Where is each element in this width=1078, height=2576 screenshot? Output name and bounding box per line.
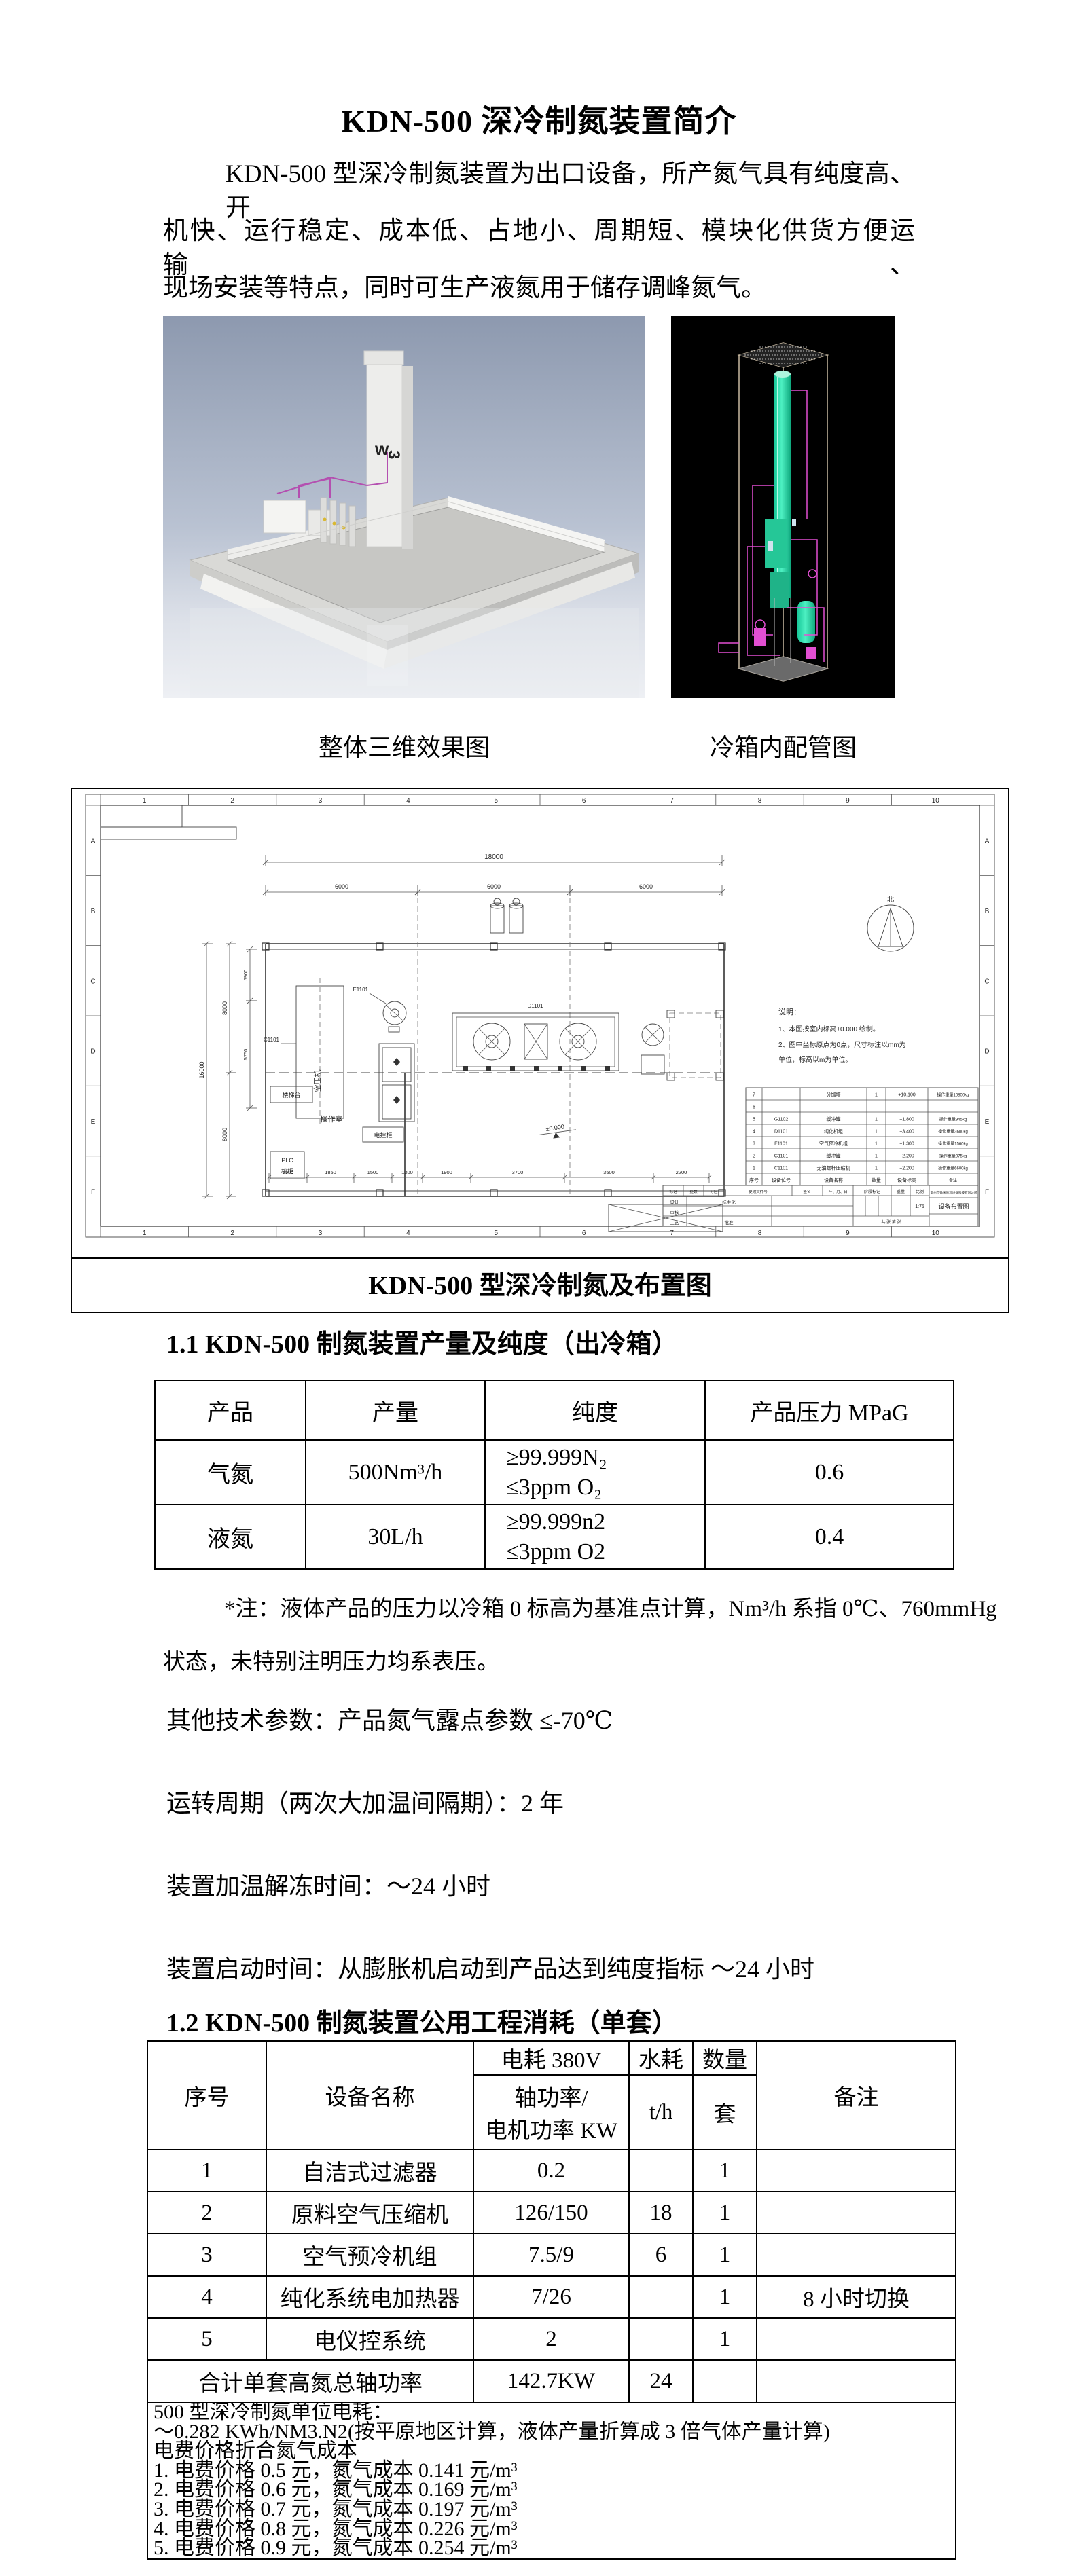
svg-text:F: F bbox=[91, 1188, 95, 1196]
total-qty bbox=[693, 2360, 757, 2402]
drawing-note-2: 2、图中坐标原点为0点，尺寸标注以mm为 bbox=[778, 1040, 906, 1049]
svg-text:1: 1 bbox=[875, 1118, 878, 1122]
svg-text:设计: 设计 bbox=[670, 1199, 680, 1205]
cell: 1 bbox=[693, 2150, 757, 2192]
coldbox-piping-image bbox=[671, 316, 895, 698]
svg-text:操作重量975kg: 操作重量975kg bbox=[939, 1154, 967, 1159]
total-remark bbox=[757, 2360, 956, 2402]
svg-text:D1101: D1101 bbox=[774, 1130, 788, 1135]
svg-text:16000: 16000 bbox=[198, 1061, 205, 1078]
cell-output: 30L/h bbox=[306, 1505, 485, 1569]
svg-text:2: 2 bbox=[230, 797, 234, 805]
header-no: 序号 bbox=[147, 2041, 266, 2150]
svg-text:+3.400: +3.400 bbox=[899, 1130, 914, 1135]
svg-text:1200: 1200 bbox=[401, 1169, 413, 1175]
cell: 1 bbox=[693, 2276, 757, 2318]
svg-text:+1.300: +1.300 bbox=[899, 1142, 914, 1147]
compressor-label: 空压机 bbox=[312, 1070, 322, 1092]
svg-text:纯化机组: 纯化机组 bbox=[824, 1128, 843, 1135]
total-label: 合计单套高氮总轴功率 bbox=[147, 2360, 473, 2402]
purity-line: ≤3ppm O2 bbox=[506, 1537, 704, 1567]
header-power: 电耗 380V bbox=[473, 2041, 629, 2075]
cell bbox=[629, 2150, 693, 2192]
intro-line-3: 现场安装等特点，同时可生产液氮用于储存调峰氮气。 bbox=[163, 272, 915, 306]
svg-text:F: F bbox=[985, 1188, 989, 1196]
tech-param-2: 运转周期（两次大加温间隔期）：2 年 bbox=[166, 1784, 564, 1819]
svg-text:缓冲罐: 缓冲罐 bbox=[827, 1153, 841, 1159]
cell: 1 bbox=[693, 2318, 757, 2360]
svg-text:分区: 分区 bbox=[710, 1189, 718, 1194]
drawing-caption: KDN-500 型深冷制氮及布置图 bbox=[72, 1257, 1008, 1312]
cell: 4 bbox=[147, 2276, 266, 2318]
layout-drawing-svg: 1122334455667788991010AABBCCDDEEFF bbox=[72, 789, 1008, 1257]
tech-param-4: 装置启动时间：从膨胀机启动到产品达到纯度指标 ～24 小时 bbox=[166, 1949, 814, 1985]
svg-text:1: 1 bbox=[875, 1142, 878, 1147]
svg-text:E1101: E1101 bbox=[774, 1142, 788, 1147]
purity-line: ≤3ppm O₂ bbox=[506, 1473, 704, 1503]
tag-d1101: D1101 bbox=[528, 1003, 544, 1009]
svg-text:8: 8 bbox=[758, 1230, 762, 1237]
unit-cost-block: 500 型深冷制氮单位电耗： ～0.282 KWh/NM3.N2(按平原地区计算… bbox=[147, 2402, 956, 2559]
cell: 2 bbox=[147, 2192, 266, 2234]
svg-text:C: C bbox=[90, 978, 95, 985]
drawing-note-3: 单位，标高以m为单位。 bbox=[778, 1055, 852, 1064]
svg-text:1850: 1850 bbox=[325, 1169, 336, 1175]
cell: 1 bbox=[693, 2192, 757, 2234]
table-row: 3 空气预冷机组 7.5/9 6 1 bbox=[147, 2234, 956, 2276]
cell bbox=[757, 2192, 956, 2234]
table-row: 2 原料空气压缩机 126/150 18 1 bbox=[147, 2192, 956, 2234]
table-row: 5 电仪控系统 2 1 bbox=[147, 2318, 956, 2360]
svg-text:4: 4 bbox=[406, 1230, 410, 1237]
cell: 8 小时切换 bbox=[757, 2276, 956, 2318]
svg-text:10: 10 bbox=[932, 1230, 940, 1237]
svg-text:1: 1 bbox=[875, 1154, 878, 1159]
cell-purity: ≥99.999N₂ ≤3ppm O₂ bbox=[485, 1440, 705, 1505]
svg-text:1: 1 bbox=[753, 1166, 755, 1171]
cell: 18 bbox=[629, 2192, 693, 2234]
svg-text:D: D bbox=[90, 1048, 95, 1056]
svg-text:1: 1 bbox=[875, 1093, 878, 1098]
table-total-row: 合计单套高氮总轴功率 142.7KW 24 bbox=[147, 2360, 956, 2402]
page-title: KDN-500 深冷制氮装置简介 bbox=[0, 96, 1078, 141]
svg-text:6000: 6000 bbox=[335, 883, 348, 890]
svg-text:+2.200: +2.200 bbox=[899, 1166, 914, 1171]
left-figure-caption: 整体三维效果图 bbox=[163, 728, 645, 763]
table-row: 1 自洁式过滤器 0.2 1 bbox=[147, 2150, 956, 2192]
cell: 自洁式过滤器 bbox=[266, 2150, 473, 2192]
svg-text:B: B bbox=[91, 908, 96, 915]
svg-text:6: 6 bbox=[582, 797, 586, 805]
svg-text:签名: 签名 bbox=[803, 1189, 810, 1194]
svg-text:4: 4 bbox=[753, 1130, 755, 1135]
svg-text:8: 8 bbox=[758, 797, 762, 805]
svg-text:6000: 6000 bbox=[639, 883, 653, 890]
svg-text:备注: 备注 bbox=[949, 1178, 957, 1183]
total-power: 142.7KW bbox=[473, 2360, 629, 2402]
control-cabinet-label: 电控柜 bbox=[374, 1131, 392, 1139]
tech-param-3: 装置加温解冻时间：～24 小时 bbox=[166, 1866, 490, 1902]
header-device: 设备名称 bbox=[266, 2041, 473, 2150]
svg-text:D: D bbox=[984, 1048, 989, 1056]
svg-text:7: 7 bbox=[670, 797, 674, 805]
cell bbox=[757, 2234, 956, 2276]
svg-text:+1.800: +1.800 bbox=[899, 1118, 914, 1122]
svg-text:1: 1 bbox=[875, 1166, 878, 1171]
svg-text:操作重量945kg: 操作重量945kg bbox=[939, 1117, 967, 1122]
svg-text:标记: 标记 bbox=[669, 1189, 677, 1194]
svg-text:2: 2 bbox=[753, 1154, 755, 1159]
cell: 0.2 bbox=[473, 2150, 629, 2192]
cell-product: 液氮 bbox=[155, 1505, 306, 1569]
north-label: 北 bbox=[887, 896, 894, 904]
cell: 空气预冷机组 bbox=[266, 2234, 473, 2276]
svg-text:C: C bbox=[984, 978, 989, 985]
svg-text:1: 1 bbox=[143, 797, 147, 805]
plc-label-1: PLC bbox=[281, 1157, 293, 1164]
table-row: 气氮 500Nm³/h ≥99.999N₂ ≤3ppm O₂ 0.6 bbox=[155, 1440, 954, 1505]
svg-text:9: 9 bbox=[846, 797, 850, 805]
svg-text:E: E bbox=[91, 1118, 96, 1126]
svg-text:C1101: C1101 bbox=[774, 1166, 788, 1171]
unit-cost-line: 500 型深冷制氮单位电耗： bbox=[148, 2403, 955, 2423]
cell: 126/150 bbox=[473, 2192, 629, 2234]
plant-3d-render-image: w 3 bbox=[163, 316, 645, 698]
cell bbox=[757, 2150, 956, 2192]
svg-text:设备位号: 设备位号 bbox=[772, 1177, 791, 1183]
svg-text:2: 2 bbox=[230, 1230, 234, 1237]
svg-text:无油螺杆压缩机: 无油螺杆压缩机 bbox=[817, 1165, 850, 1171]
svg-text:7: 7 bbox=[670, 1230, 674, 1237]
layout-drawing-figure: 1122334455667788991010AABBCCDDEEFF bbox=[71, 788, 1009, 1313]
svg-text:工艺: 工艺 bbox=[670, 1220, 680, 1226]
svg-text:3: 3 bbox=[319, 797, 323, 805]
svg-text:4: 4 bbox=[406, 797, 410, 805]
cell: 电仪控系统 bbox=[266, 2318, 473, 2360]
svg-text:E: E bbox=[985, 1118, 990, 1126]
cell-pressure: 0.4 bbox=[705, 1505, 954, 1569]
svg-text:8000: 8000 bbox=[221, 1128, 228, 1141]
svg-text:1500: 1500 bbox=[367, 1169, 379, 1175]
svg-text:缓冲罐: 缓冲罐 bbox=[827, 1116, 841, 1122]
header-purity: 纯度 bbox=[485, 1380, 705, 1440]
header-remark: 备注 bbox=[757, 2041, 956, 2150]
svg-text:阶段标记: 阶段标记 bbox=[864, 1189, 880, 1194]
cell-output: 500Nm³/h bbox=[306, 1440, 485, 1505]
svg-text:更改文件号: 更改文件号 bbox=[749, 1189, 768, 1194]
cell-pressure: 0.6 bbox=[705, 1440, 954, 1505]
svg-text:7: 7 bbox=[753, 1093, 755, 1098]
total-water: 24 bbox=[629, 2360, 693, 2402]
svg-text:批准: 批准 bbox=[725, 1219, 734, 1226]
purity-line: ≥99.999n2 bbox=[506, 1507, 704, 1537]
header-water: 水耗 bbox=[629, 2041, 693, 2075]
header-water-sub: t/h bbox=[629, 2075, 693, 2150]
svg-text:共 张 第 张: 共 张 第 张 bbox=[881, 1219, 901, 1225]
cell: 6 bbox=[629, 2234, 693, 2276]
capacity-purity-table: 产品 产量 纯度 产品压力 MPaG 气氮 500Nm³/h ≥99.999N₂… bbox=[154, 1380, 954, 1570]
svg-text:3700: 3700 bbox=[512, 1169, 524, 1175]
power-sub-line: 轴功率/ bbox=[474, 2080, 628, 2112]
unit-cost-line: 3. 电费价格 0.7 元，氮气成本 0.197 元/m³ bbox=[148, 2500, 955, 2520]
svg-text:1: 1 bbox=[143, 1230, 147, 1237]
header-qty-sub: 套 bbox=[693, 2075, 757, 2150]
svg-text:5: 5 bbox=[495, 1230, 499, 1237]
svg-text:G1101: G1101 bbox=[774, 1154, 789, 1159]
svg-text:8000: 8000 bbox=[221, 1001, 228, 1015]
svg-text:空气预冷机组: 空气预冷机组 bbox=[819, 1141, 848, 1147]
document-page: { "page": {"title": "KDN-500 深冷制氮装置简介"},… bbox=[0, 0, 1078, 2576]
svg-text:操作重量3600kg: 操作重量3600kg bbox=[938, 1129, 968, 1135]
unit-cost-line: 电费价格折合氮气成本 bbox=[148, 2442, 955, 2461]
svg-text:设备布置图: 设备布置图 bbox=[938, 1202, 969, 1210]
svg-text:5750: 5750 bbox=[242, 1049, 249, 1061]
svg-text:分馏塔: 分馏塔 bbox=[827, 1092, 841, 1098]
purity-line: ≥99.999N₂ bbox=[506, 1443, 704, 1473]
svg-text:处数: 处数 bbox=[689, 1189, 698, 1194]
table-header-row: 产品 产量 纯度 产品压力 MPaG bbox=[155, 1380, 954, 1440]
unit-cost-row: 500 型深冷制氮单位电耗： ～0.282 KWh/NM3.N2(按平原地区计算… bbox=[147, 2402, 956, 2559]
svg-text:设备名称: 设备名称 bbox=[824, 1177, 843, 1183]
svg-text:数量: 数量 bbox=[872, 1177, 881, 1183]
svg-text:A: A bbox=[91, 838, 96, 845]
cell: 5 bbox=[147, 2318, 266, 2360]
elevation-label: ±0.000 bbox=[545, 1123, 565, 1133]
cell bbox=[629, 2318, 693, 2360]
power-sub-line: 电机功率 KW bbox=[474, 2112, 628, 2145]
right-figure-caption: 冷箱内配管图 bbox=[671, 728, 895, 763]
svg-text:操作重量1560kg: 操作重量1560kg bbox=[938, 1141, 968, 1147]
svg-text:1900: 1900 bbox=[441, 1169, 452, 1175]
svg-text:比例: 比例 bbox=[916, 1189, 924, 1194]
header-product: 产品 bbox=[155, 1380, 306, 1440]
unit-cost-line: ～0.282 KWh/NM3.N2(按平原地区计算，液体产量折算成 3 倍气体产… bbox=[148, 2423, 955, 2442]
svg-text:5: 5 bbox=[753, 1118, 755, 1122]
svg-text:3: 3 bbox=[319, 1230, 323, 1237]
header-power-sub: 轴功率/ 电机功率 KW bbox=[473, 2075, 629, 2150]
drawing-note-1: 1、本图按室内标高±0.000 绘制。 bbox=[778, 1025, 880, 1033]
svg-text:设备标高: 设备标高 bbox=[897, 1177, 916, 1183]
svg-text:序号: 序号 bbox=[749, 1177, 759, 1183]
cell: 1 bbox=[693, 2234, 757, 2276]
cell: 原料空气压缩机 bbox=[266, 2192, 473, 2234]
svg-text:5900: 5900 bbox=[242, 970, 249, 981]
utility-consumption-table: 序号 设备名称 电耗 380V 水耗 数量 备注 轴功率/ 电机功率 KW t/… bbox=[147, 2040, 956, 2560]
svg-text:6: 6 bbox=[753, 1105, 755, 1110]
cell bbox=[629, 2276, 693, 2318]
svg-text:+2.200: +2.200 bbox=[899, 1154, 914, 1159]
cell: 3 bbox=[147, 2234, 266, 2276]
svg-text:1:75: 1:75 bbox=[915, 1204, 924, 1209]
table-note-line-1: *注：液体产品的压力以冷箱 0 标高为基准点计算，Nm³/h 系指 0℃、760… bbox=[224, 1590, 997, 1623]
svg-text:年、月、日: 年、月、日 bbox=[829, 1189, 848, 1194]
table-header-row-1: 序号 设备名称 电耗 380V 水耗 数量 备注 bbox=[147, 2041, 956, 2075]
svg-text:A: A bbox=[985, 838, 990, 845]
svg-text:重量: 重量 bbox=[897, 1189, 905, 1194]
svg-text:操作重量10800kg: 操作重量10800kg bbox=[937, 1092, 969, 1098]
svg-text:+10.100: +10.100 bbox=[898, 1093, 916, 1098]
drawing-note-0: 说明： bbox=[778, 1007, 801, 1016]
svg-text:标准化: 标准化 bbox=[722, 1199, 736, 1205]
svg-text:5: 5 bbox=[495, 797, 499, 805]
svg-text:18000: 18000 bbox=[484, 853, 503, 861]
svg-text:6: 6 bbox=[582, 1230, 586, 1237]
svg-text:审核: 审核 bbox=[670, 1209, 680, 1215]
svg-text:B: B bbox=[985, 908, 990, 915]
control-room-label: 操作室 bbox=[321, 1114, 343, 1124]
stair-label: 楼梯台 bbox=[282, 1091, 300, 1099]
section-1-1-heading: 1.1 KDN-500 制氮装置产量及纯度（出冷箱） bbox=[166, 1323, 678, 1360]
unit-cost-line: 4. 电费价格 0.8 元，氮气成本 0.226 元/m³ bbox=[148, 2520, 955, 2539]
header-qty: 数量 bbox=[693, 2041, 757, 2075]
svg-text:常州市微米低温设备科技有限公司: 常州市微米低温设备科技有限公司 bbox=[931, 1190, 977, 1195]
tech-param-1: 其他技术参数：产品氮气露点参数 ≤-70℃ bbox=[166, 1701, 613, 1736]
unit-cost-line: 5. 电费价格 0.9 元，氮气成本 0.254 元/m³ bbox=[148, 2539, 955, 2558]
tag-e1101: E1101 bbox=[353, 987, 368, 993]
svg-text:3500: 3500 bbox=[603, 1169, 615, 1175]
svg-text:3: 3 bbox=[753, 1142, 755, 1147]
header-output: 产量 bbox=[306, 1380, 485, 1440]
cell: 7/26 bbox=[473, 2276, 629, 2318]
header-pressure: 产品压力 MPaG bbox=[705, 1380, 954, 1440]
svg-text:操作重量6600kg: 操作重量6600kg bbox=[938, 1166, 968, 1171]
svg-text:2200: 2200 bbox=[676, 1169, 687, 1175]
table-row: 液氮 30L/h ≥99.999n2 ≤3ppm O2 0.4 bbox=[155, 1505, 954, 1569]
svg-text:G1102: G1102 bbox=[774, 1118, 789, 1122]
svg-text:9: 9 bbox=[846, 1230, 850, 1237]
table-row: 4 纯化系统电加热器 7/26 1 8 小时切换 bbox=[147, 2276, 956, 2318]
section-1-2-heading: 1.2 KDN-500 制氮装置公用工程消耗（单套） bbox=[166, 2002, 678, 2039]
cell: 1 bbox=[147, 2150, 266, 2192]
svg-text:1: 1 bbox=[875, 1130, 878, 1135]
unit-cost-line: 2. 电费价格 0.6 元，氮气成本 0.169 元/m³ bbox=[148, 2480, 955, 2500]
cell: 2 bbox=[473, 2318, 629, 2360]
cell-product: 气氮 bbox=[155, 1440, 306, 1505]
cell bbox=[757, 2318, 956, 2360]
svg-text:6000: 6000 bbox=[487, 883, 501, 890]
unit-cost-line: 1. 电费价格 0.5 元，氮气成本 0.141 元/m³ bbox=[148, 2461, 955, 2481]
table-note-line-2: 状态，未特别注明压力均系表压。 bbox=[163, 1643, 499, 1676]
cell: 7.5/9 bbox=[473, 2234, 629, 2276]
tag-c1101: C1101 bbox=[264, 1037, 280, 1043]
svg-text:1500: 1500 bbox=[283, 1169, 294, 1175]
svg-text:10: 10 bbox=[932, 797, 940, 805]
cell-purity: ≥99.999n2 ≤3ppm O2 bbox=[485, 1505, 705, 1569]
cell: 纯化系统电加热器 bbox=[266, 2276, 473, 2318]
